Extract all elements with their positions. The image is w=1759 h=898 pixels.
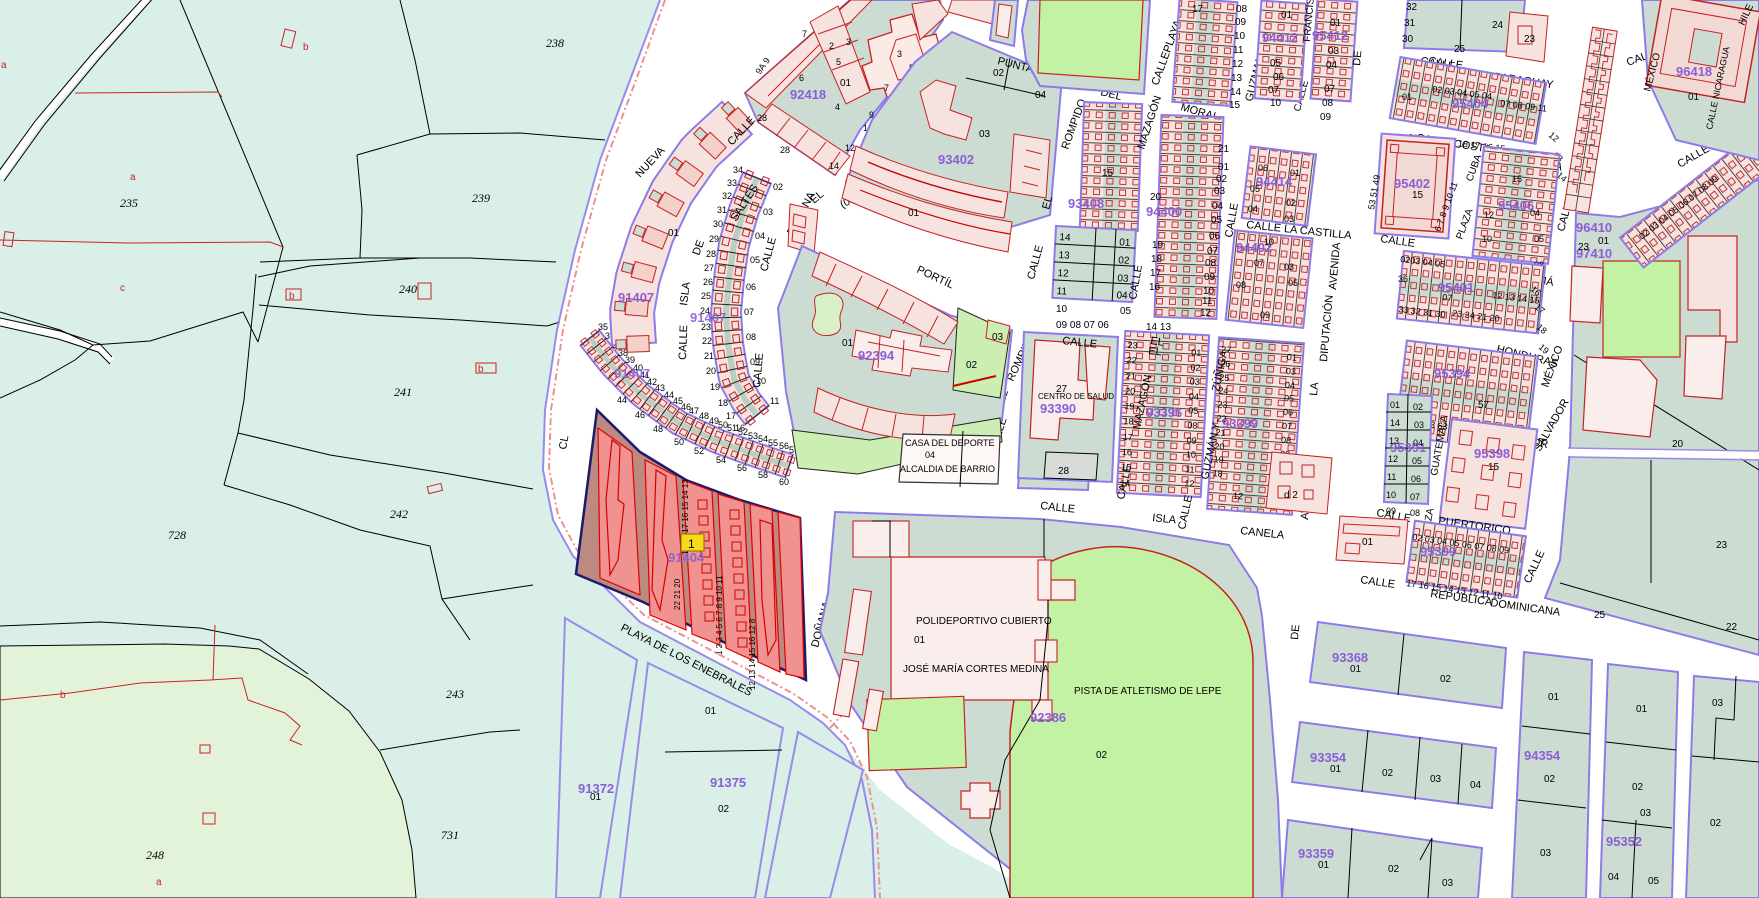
svg-text:24: 24: [1492, 20, 1504, 31]
svg-text:52: 52: [738, 427, 748, 437]
svg-text:04: 04: [755, 231, 765, 241]
svg-text:01: 01: [1362, 537, 1374, 548]
svg-text:05: 05: [1211, 215, 1223, 226]
svg-text:11: 11: [770, 396, 779, 406]
svg-text:51: 51: [727, 423, 737, 433]
svg-text:731: 731: [441, 828, 459, 842]
svg-text:15: 15: [1488, 462, 1500, 473]
svg-text:15: 15: [1102, 168, 1114, 179]
svg-text:30: 30: [1402, 34, 1414, 45]
svg-text:54: 54: [758, 434, 768, 444]
svg-text:60: 60: [779, 477, 789, 487]
svg-text:93396: 93396: [1146, 405, 1182, 420]
svg-text:11: 11: [1387, 472, 1396, 482]
svg-text:5: 5: [836, 57, 841, 67]
svg-text:13: 13: [1058, 250, 1070, 262]
svg-text:04: 04: [1035, 90, 1047, 101]
svg-text:02: 02: [1118, 255, 1130, 267]
svg-text:248: 248: [146, 848, 164, 862]
svg-text:06: 06: [746, 282, 756, 292]
svg-text:93354: 93354: [1310, 750, 1347, 765]
svg-text:7: 7: [802, 29, 807, 39]
svg-text:a: a: [130, 172, 136, 183]
svg-text:95412: 95412: [1312, 28, 1348, 43]
svg-text:17: 17: [1122, 432, 1133, 443]
svg-text:21: 21: [1218, 144, 1230, 155]
svg-text:06: 06: [1273, 72, 1285, 83]
svg-text:92386: 92386: [1030, 710, 1066, 725]
svg-text:240: 240: [399, 282, 417, 296]
svg-text:58: 58: [758, 470, 768, 480]
svg-text:13: 13: [1389, 436, 1399, 446]
svg-text:17: 17: [1192, 4, 1204, 15]
svg-text:04: 04: [1248, 204, 1258, 214]
svg-text:01: 01: [1318, 860, 1330, 871]
svg-text:05: 05: [1648, 876, 1660, 887]
svg-text:56: 56: [737, 463, 747, 473]
svg-text:10: 10: [1270, 98, 1282, 109]
svg-text:12: 12: [845, 143, 855, 153]
svg-text:25: 25: [1594, 610, 1606, 621]
svg-text:11: 11: [1233, 45, 1244, 56]
svg-text:02: 02: [1190, 362, 1201, 373]
svg-text:6: 6: [799, 73, 804, 83]
svg-text:POLIDEPORTIVO CUBIERTO: POLIDEPORTIVO CUBIERTO: [916, 616, 1052, 627]
svg-text:91407: 91407: [690, 310, 726, 325]
svg-text:53: 53: [748, 431, 758, 441]
svg-text:48: 48: [699, 411, 709, 421]
svg-text:23: 23: [1578, 242, 1590, 253]
svg-text:06: 06: [1411, 474, 1421, 484]
svg-text:05: 05: [1250, 184, 1260, 194]
svg-text:31: 31: [1404, 18, 1416, 29]
svg-text:95394: 95394: [1434, 366, 1471, 381]
svg-text:01: 01: [1330, 18, 1342, 29]
svg-text:02: 02: [1544, 774, 1556, 785]
svg-text:4: 4: [835, 102, 840, 112]
svg-text:11: 11: [1056, 286, 1067, 298]
svg-text:04: 04: [1530, 208, 1540, 218]
svg-text:01: 01: [1218, 162, 1230, 173]
svg-text:CL: CL: [557, 435, 571, 451]
svg-text:25: 25: [701, 291, 711, 301]
svg-text:23: 23: [1217, 399, 1228, 410]
svg-text:a: a: [156, 877, 162, 888]
svg-text:03: 03: [1328, 46, 1340, 57]
svg-text:03: 03: [1284, 262, 1294, 272]
svg-text:19: 19: [1152, 240, 1164, 251]
svg-text:ALCALDIA DE BARRIO: ALCALDIA DE BARRIO: [900, 464, 995, 474]
svg-text:93402: 93402: [938, 152, 974, 167]
svg-text:20: 20: [1150, 192, 1162, 203]
svg-text:04: 04: [1608, 872, 1620, 883]
svg-text:01: 01: [1390, 400, 1400, 410]
svg-text:93359: 93359: [1298, 846, 1334, 861]
svg-text:01: 01: [1191, 347, 1202, 358]
svg-text:48: 48: [653, 424, 663, 434]
svg-text:56: 56: [779, 441, 789, 451]
svg-text:09: 09: [1320, 112, 1332, 123]
svg-text:10: 10: [1264, 237, 1274, 247]
svg-text:91407: 91407: [614, 366, 650, 381]
svg-text:36: 36: [1398, 274, 1408, 284]
svg-text:235: 235: [120, 196, 138, 210]
svg-text:22: 22: [702, 336, 712, 346]
svg-text:06: 06: [1209, 231, 1221, 242]
svg-text:10: 10: [1056, 304, 1068, 315]
svg-text:01: 01: [1287, 352, 1298, 363]
svg-text:d 2: d 2: [1284, 490, 1298, 501]
svg-text:238: 238: [546, 36, 564, 50]
svg-text:04: 04: [1116, 290, 1128, 302]
svg-text:01: 01: [1119, 237, 1131, 249]
svg-text:12: 12: [1057, 268, 1069, 280]
svg-text:07: 07: [1268, 85, 1280, 96]
svg-text:09: 09: [1235, 17, 1247, 28]
svg-text:03: 03: [1286, 366, 1297, 377]
svg-text:05: 05: [750, 255, 760, 265]
svg-text:57: 57: [1478, 400, 1490, 411]
svg-text:31: 31: [717, 205, 727, 215]
svg-text:93399: 93399: [1222, 416, 1258, 431]
svg-text:01: 01: [914, 635, 926, 646]
svg-text:02: 02: [1710, 818, 1722, 829]
svg-text:21: 21: [704, 351, 714, 361]
svg-text:32: 32: [1406, 2, 1418, 13]
svg-text:01: 01: [840, 78, 852, 89]
svg-text:03: 03: [1442, 878, 1454, 889]
svg-text:242: 242: [390, 507, 408, 521]
svg-text:10: 10: [1482, 234, 1492, 244]
svg-text:CALLE: CALLE: [677, 325, 690, 360]
svg-text:44: 44: [617, 395, 627, 405]
svg-text:95402: 95402: [1394, 176, 1430, 191]
svg-text:05: 05: [1534, 234, 1544, 244]
svg-text:15: 15: [1512, 174, 1522, 184]
svg-text:08: 08: [1187, 420, 1198, 431]
svg-text:7: 7: [884, 83, 889, 93]
svg-text:06: 06: [1283, 407, 1294, 418]
svg-text:02: 02: [1286, 198, 1296, 208]
svg-text:1: 1: [688, 537, 695, 551]
svg-text:07: 07: [1442, 292, 1453, 303]
svg-text:54: 54: [716, 455, 726, 465]
svg-text:01: 01: [1281, 10, 1293, 21]
svg-text:01: 01: [590, 792, 602, 803]
svg-text:29: 29: [709, 234, 719, 244]
svg-text:18: 18: [718, 398, 728, 408]
svg-text:09: 09: [1204, 272, 1216, 283]
svg-text:18: 18: [1151, 254, 1163, 265]
svg-text:30: 30: [713, 219, 723, 229]
svg-text:02: 02: [1096, 750, 1108, 761]
svg-text:25: 25: [1454, 44, 1466, 55]
svg-text:50: 50: [674, 437, 684, 447]
svg-text:03: 03: [992, 332, 1004, 343]
svg-text:04: 04: [1326, 60, 1338, 71]
svg-text:03: 03: [979, 129, 991, 140]
svg-text:23: 23: [1127, 340, 1138, 351]
svg-text:02: 02: [1413, 402, 1423, 412]
svg-text:08: 08: [746, 332, 756, 342]
svg-text:CASA DEL DEPORTE: CASA DEL DEPORTE: [905, 438, 995, 448]
svg-text:PISTA DE ATLETISMO DE LEPE: PISTA DE ATLETISMO DE LEPE: [1074, 686, 1222, 697]
svg-text:JOSÉ MARÍA CORTES MEDINA: JOSÉ MARÍA CORTES MEDINA: [903, 662, 1049, 675]
svg-text:01: 01: [1548, 692, 1560, 703]
svg-text:03: 03: [763, 207, 773, 217]
svg-text:95352: 95352: [1606, 834, 1642, 849]
svg-text:11: 11: [1202, 296, 1213, 307]
svg-text:b: b: [60, 690, 66, 701]
svg-text:14 13: 14 13: [1146, 322, 1171, 333]
svg-text:15: 15: [1229, 100, 1241, 111]
svg-text:14: 14: [1059, 232, 1071, 244]
svg-text:03: 03: [1640, 808, 1652, 819]
svg-text:01: 01: [1688, 92, 1700, 103]
svg-text:23: 23: [1716, 540, 1728, 551]
svg-text:93390: 93390: [1040, 401, 1076, 416]
svg-text:93408: 93408: [1068, 196, 1104, 211]
svg-text:05: 05: [1188, 405, 1199, 416]
svg-text:20: 20: [1672, 439, 1684, 450]
svg-text:02: 02: [1632, 782, 1644, 793]
svg-text:15: 15: [1412, 190, 1424, 201]
svg-text:1 2 3 4 5 6 7 8 9 10 11: 1 2 3 4 5 6 7 8 9 10 11: [715, 575, 724, 655]
svg-text:02: 02: [773, 182, 783, 192]
svg-text:09 08 07 06: 09 08 07 06: [1056, 320, 1109, 331]
svg-text:91407: 91407: [618, 290, 654, 305]
svg-text:02: 02: [1216, 174, 1228, 185]
svg-text:03: 03: [1430, 774, 1442, 785]
svg-text:28: 28: [780, 145, 790, 155]
svg-text:09: 09: [1186, 435, 1197, 446]
svg-text:EL: EL: [1150, 335, 1165, 349]
svg-text:27: 27: [704, 263, 714, 273]
svg-text:94414: 94414: [1256, 174, 1293, 189]
svg-text:c: c: [120, 283, 125, 294]
svg-text:10: 10: [1234, 31, 1246, 42]
svg-text:02: 02: [1440, 674, 1452, 685]
svg-text:01: 01: [1290, 168, 1300, 178]
svg-text:08: 08: [1236, 4, 1248, 15]
svg-text:01: 01: [908, 208, 920, 219]
svg-text:08: 08: [1281, 435, 1292, 446]
svg-text:13: 13: [1231, 73, 1243, 84]
svg-text:07: 07: [1207, 246, 1219, 257]
svg-text:22: 22: [1127, 355, 1138, 366]
svg-text:01: 01: [1402, 92, 1412, 102]
svg-text:02: 02: [718, 804, 730, 815]
svg-text:04: 04: [1470, 780, 1482, 791]
svg-text:95398: 95398: [1474, 446, 1510, 461]
svg-text:3: 3: [846, 37, 851, 47]
svg-text:12 13 14 15 16 12 8: 12 13 14 15 16 12 8: [748, 618, 757, 690]
svg-text:04: 04: [1413, 438, 1423, 448]
svg-text:11: 11: [1185, 464, 1195, 474]
svg-text:23: 23: [1524, 34, 1536, 45]
svg-text:18: 18: [1212, 468, 1223, 479]
svg-text:14: 14: [829, 161, 839, 171]
svg-text:96410: 96410: [1576, 220, 1612, 235]
svg-text:16: 16: [1149, 282, 1161, 293]
svg-text:05: 05: [1284, 393, 1295, 404]
svg-text:02: 02: [966, 360, 978, 371]
svg-text:3: 3: [897, 49, 902, 59]
svg-text:b: b: [289, 291, 295, 302]
svg-text:22: 22: [1726, 622, 1738, 633]
svg-text:17: 17: [1150, 268, 1162, 279]
svg-text:07: 07: [1324, 84, 1336, 95]
svg-text:ISLA: ISLA: [1152, 512, 1178, 526]
svg-text:09: 09: [1260, 310, 1270, 320]
svg-text:a: a: [1, 60, 7, 71]
svg-text:01: 01: [842, 338, 854, 349]
svg-text:728: 728: [168, 528, 186, 542]
svg-text:14: 14: [1230, 87, 1242, 98]
svg-text:92418: 92418: [790, 87, 826, 102]
svg-text:241: 241: [394, 385, 412, 399]
svg-text:46: 46: [635, 410, 645, 420]
svg-text:07: 07: [744, 307, 754, 317]
svg-text:04: 04: [1285, 380, 1296, 391]
svg-text:12: 12: [1200, 308, 1212, 319]
svg-text:01: 01: [1350, 664, 1362, 675]
svg-text:01: 01: [668, 228, 680, 239]
svg-text:32: 32: [722, 191, 732, 201]
svg-text:b: b: [303, 42, 309, 53]
svg-text:04: 04: [1212, 201, 1224, 212]
svg-text:22 21 20: 22 21 20: [673, 578, 682, 610]
svg-text:19: 19: [1124, 401, 1135, 412]
svg-text:2: 2: [829, 41, 834, 51]
svg-text:02: 02: [993, 68, 1005, 79]
svg-text:94412: 94412: [1262, 30, 1298, 45]
svg-text:94400: 94400: [1146, 204, 1182, 219]
svg-text:28: 28: [757, 113, 767, 123]
svg-text:239: 239: [472, 191, 490, 205]
svg-text:10: 10: [1186, 449, 1197, 460]
svg-text:21: 21: [1126, 371, 1137, 382]
svg-text:47: 47: [689, 406, 699, 416]
svg-text:DE: DE: [1351, 50, 1364, 66]
svg-text:12: 12: [1388, 454, 1398, 464]
svg-text:12: 12: [1233, 491, 1244, 502]
svg-text:07: 07: [1254, 258, 1264, 268]
svg-text:55: 55: [768, 438, 778, 448]
svg-text:03: 03: [1712, 698, 1724, 709]
svg-text:02: 02: [1388, 864, 1400, 875]
svg-text:CENTRO DE SALUD: CENTRO DE SALUD: [1038, 392, 1114, 401]
svg-text:14: 14: [1390, 418, 1400, 428]
svg-text:03: 03: [1214, 186, 1226, 197]
svg-text:03: 03: [1540, 848, 1552, 859]
svg-text:03: 03: [1189, 376, 1200, 387]
svg-text:20: 20: [706, 366, 716, 376]
svg-text:16: 16: [1122, 447, 1133, 458]
svg-text:03: 03: [1414, 420, 1424, 430]
svg-text:243: 243: [446, 687, 464, 701]
svg-text:08: 08: [1322, 98, 1334, 109]
svg-text:05: 05: [1120, 306, 1132, 317]
svg-text:19: 19: [710, 382, 720, 392]
svg-text:04: 04: [1189, 391, 1200, 402]
svg-text:52: 52: [694, 446, 704, 456]
svg-text:04: 04: [925, 450, 935, 460]
svg-text:20: 20: [1125, 386, 1136, 397]
svg-text:05: 05: [1412, 456, 1422, 466]
svg-text:01: 01: [1330, 764, 1342, 775]
svg-text:96418: 96418: [1676, 64, 1712, 79]
svg-text:06: 06: [1258, 163, 1268, 173]
svg-text:08: 08: [1236, 280, 1246, 290]
svg-text:28: 28: [1058, 466, 1070, 477]
svg-text:93368: 93368: [1332, 650, 1368, 665]
svg-text:05: 05: [1270, 58, 1282, 69]
svg-text:DE: DE: [1289, 624, 1302, 640]
svg-text:12: 12: [1484, 210, 1494, 220]
svg-text:28: 28: [706, 249, 716, 259]
svg-text:12: 12: [1184, 478, 1195, 489]
svg-text:94354: 94354: [1524, 748, 1561, 763]
svg-text:01: 01: [1636, 704, 1648, 715]
svg-text:34: 34: [733, 165, 743, 175]
svg-text:95406: 95406: [1498, 198, 1534, 213]
svg-text:12: 12: [1232, 59, 1244, 70]
svg-text:91375: 91375: [710, 775, 746, 790]
svg-text:LA: LA: [1308, 381, 1321, 396]
svg-text:10: 10: [1386, 490, 1396, 500]
svg-text:91404: 91404: [668, 550, 705, 565]
svg-text:03: 03: [1117, 273, 1129, 285]
svg-text:08: 08: [1205, 258, 1217, 269]
svg-text:01: 01: [705, 706, 717, 717]
svg-text:33: 33: [727, 178, 737, 188]
svg-text:05: 05: [1288, 278, 1298, 288]
svg-text:07: 07: [1410, 492, 1420, 502]
svg-text:26: 26: [703, 277, 713, 287]
svg-text:92394: 92394: [858, 348, 895, 363]
svg-text:b: b: [478, 364, 484, 375]
svg-text:07: 07: [1282, 421, 1293, 432]
svg-text:02: 02: [1382, 768, 1394, 779]
